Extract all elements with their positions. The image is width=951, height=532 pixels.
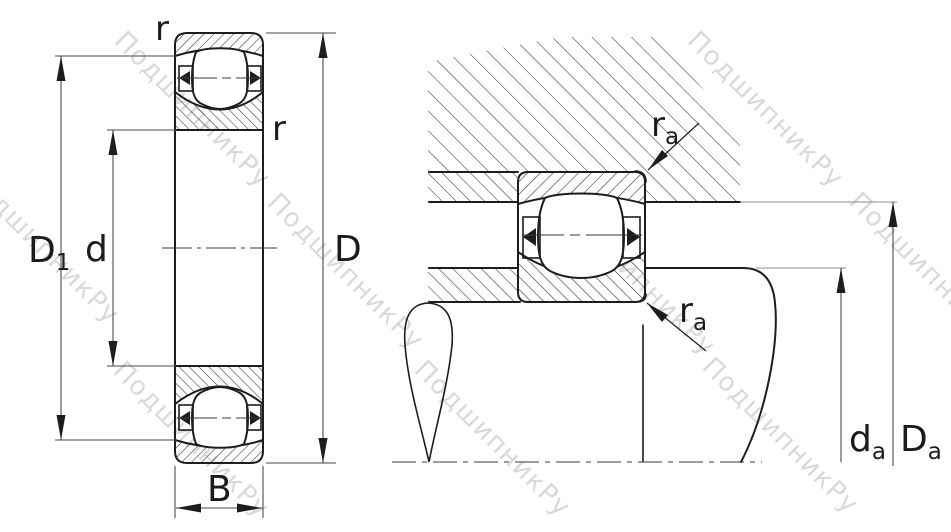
barrel-roller-top (192, 48, 248, 109)
label-d: d (85, 229, 108, 270)
barrel-roller (538, 194, 624, 279)
label-r-top: r (155, 9, 169, 49)
label-D: D (334, 229, 362, 270)
label-B: B (207, 469, 232, 510)
bearing-dimension-drawing: ПодшипникРу ПодшипникРу ПодшипникРу Подш… (0, 0, 951, 532)
barrel-roller-bottom (192, 387, 248, 448)
left-view-bearing-section (162, 33, 277, 463)
shaft-shoulder-band-left (428, 268, 518, 302)
technical-drawing-page: ПодшипникРу ПодшипникРу ПодшипникРу Подш… (0, 0, 951, 532)
label-r-side: r (272, 109, 286, 149)
housing-shoulder-band-left (428, 172, 518, 202)
